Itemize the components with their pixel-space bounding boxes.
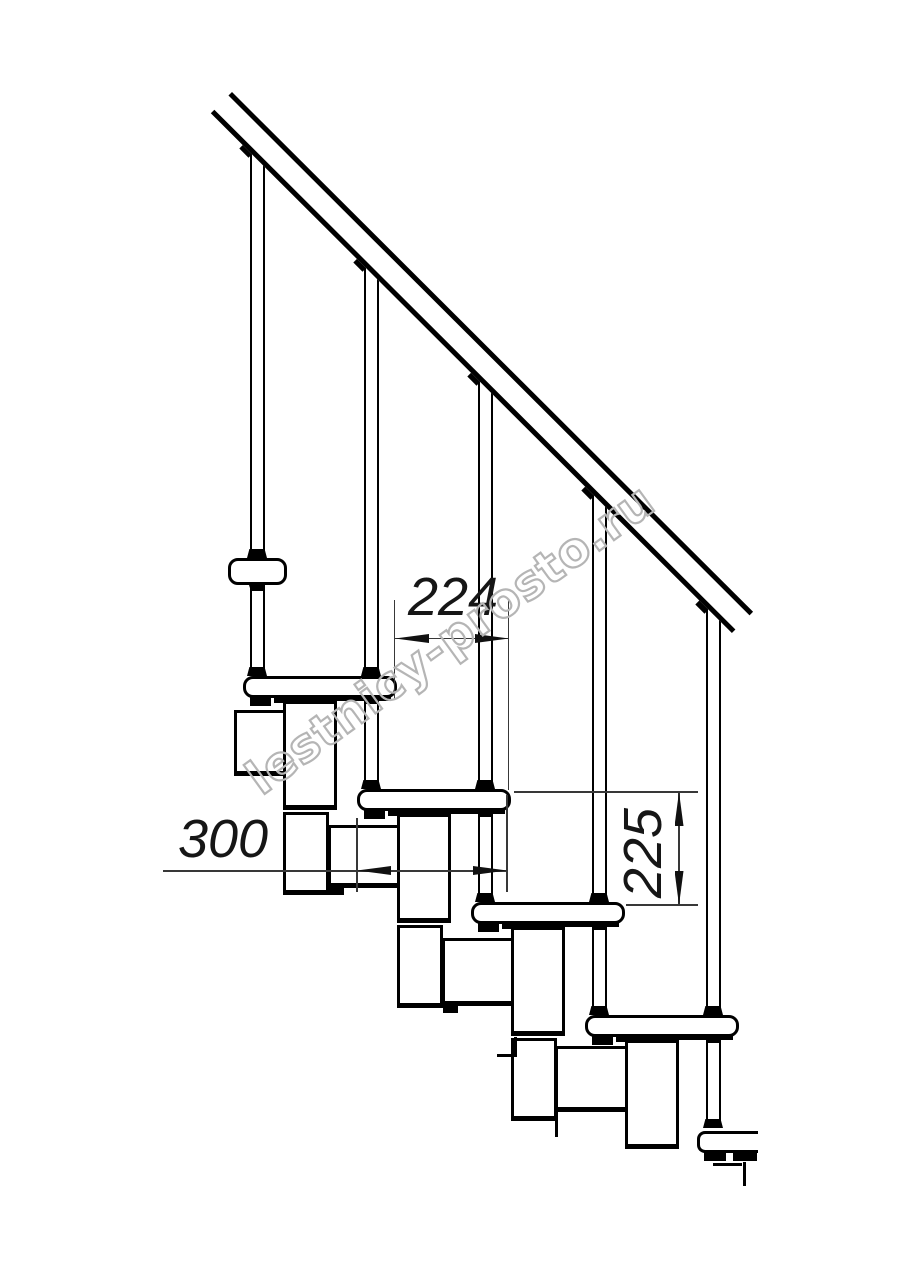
rod-foot [475, 893, 495, 902]
watermark: lestnicy-prosto.ru [0, 0, 914, 1280]
break-line [497, 1054, 517, 1057]
stringer-module-extension [511, 1038, 557, 1121]
step-bracket [592, 1036, 613, 1045]
bolt-rod [364, 698, 379, 789]
stringer-module-extension [283, 812, 329, 895]
break-line [743, 1162, 746, 1186]
bolt-rod [478, 811, 493, 902]
step-tread-bottom-fragment [697, 1131, 758, 1153]
step-bracket [364, 810, 385, 819]
step-tread [357, 789, 511, 811]
stringer-module-extension [397, 925, 443, 1008]
step-tread [585, 1015, 739, 1037]
stringer-module-column [511, 927, 565, 1036]
dimension-label: 300 [168, 808, 278, 870]
bolt-rod [592, 924, 607, 1015]
baluster-rod [250, 150, 265, 558]
step-tread [243, 676, 397, 698]
rod-foot [247, 667, 267, 676]
extension-line [356, 818, 358, 892]
rod-connector [705, 1037, 721, 1043]
arrowhead-down [675, 871, 684, 905]
rod-connector [477, 811, 493, 817]
step-tread [471, 902, 625, 924]
rod-foot [703, 1119, 723, 1128]
module-foot [443, 1006, 458, 1013]
arrowhead-left [395, 634, 429, 643]
step-bracket [478, 923, 499, 932]
dimension-line [163, 870, 507, 872]
baluster-rod [706, 606, 721, 1015]
step-underline [733, 1151, 757, 1161]
stringer-module-column [625, 1040, 679, 1149]
stringer-module-tab [234, 710, 290, 776]
rod-foot [589, 1006, 609, 1015]
rod-connector [363, 698, 379, 704]
step-tread-top-fragment [228, 558, 287, 585]
stringer-module-tab [328, 825, 405, 888]
dimension-label: 225 [618, 803, 668, 903]
bolt-rod [706, 1037, 721, 1128]
rod-connector [361, 667, 381, 676]
step-bracket [250, 697, 271, 706]
stringer-module-tab [442, 938, 518, 1006]
baluster-rod [364, 264, 379, 676]
rod-connector [703, 1006, 723, 1015]
rod-connector [247, 549, 267, 558]
rod-foot [361, 780, 381, 789]
dimension-label: 224 [398, 566, 508, 628]
rod-connector [591, 924, 607, 930]
rod-connector [475, 780, 495, 789]
extension-line [514, 791, 698, 793]
stringer-module-column [397, 814, 451, 923]
extension-line [626, 904, 698, 906]
break-line [555, 1110, 558, 1137]
drawing-canvas: 224 300 225 lestnicy-prosto.ru [0, 0, 914, 1280]
rod-connector [249, 585, 265, 591]
step-bracket [704, 1152, 726, 1161]
module-foot [329, 888, 344, 895]
arrowhead-up [675, 792, 684, 826]
rod-connector [589, 893, 609, 902]
extension-line [394, 600, 396, 700]
baluster-rod [592, 492, 607, 902]
bolt-rod [250, 585, 265, 676]
extension-line [506, 795, 508, 892]
stringer-module-column [283, 701, 337, 810]
break-line [713, 1163, 742, 1166]
extension-line [508, 600, 510, 790]
stringer-module-tab [555, 1046, 632, 1112]
